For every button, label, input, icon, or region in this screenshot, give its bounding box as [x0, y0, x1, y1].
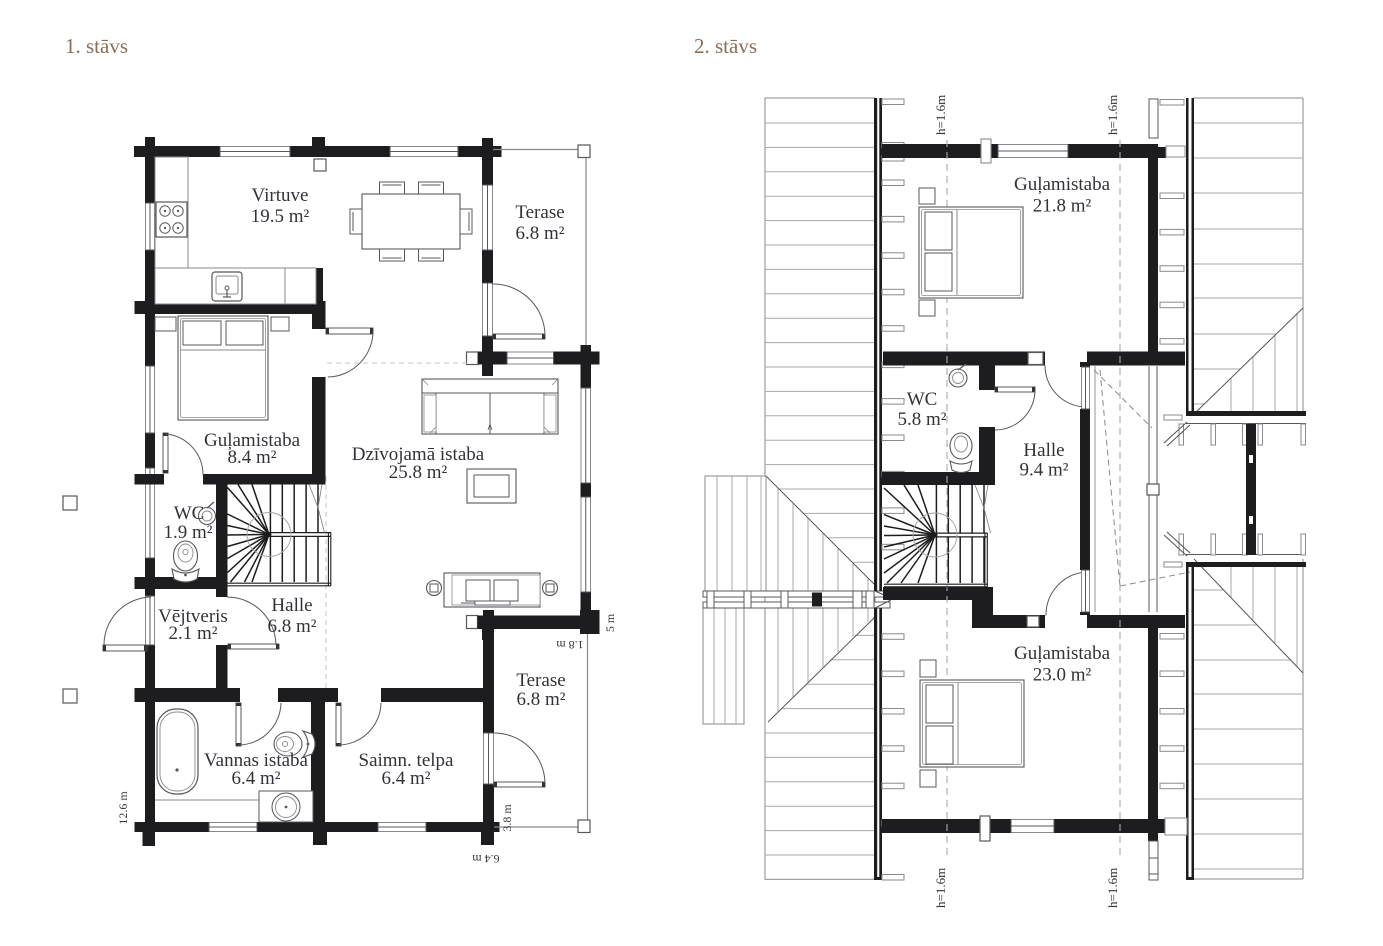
svg-text:h=1.6m: h=1.6m [933, 95, 948, 135]
svg-text:h=1.6m: h=1.6m [1105, 868, 1120, 908]
svg-text:6.4 m²: 6.4 m² [232, 768, 281, 789]
svg-text:12.6 m: 12.6 m [116, 791, 130, 825]
svg-text:h=1.6m: h=1.6m [933, 868, 948, 908]
svg-text:6.8 m²: 6.8 m² [516, 223, 565, 244]
svg-text:6.8 m²: 6.8 m² [517, 689, 566, 710]
svg-text:2. stāvs: 2. stāvs [694, 34, 757, 58]
svg-text:6.8 m²: 6.8 m² [268, 616, 317, 637]
svg-text:3.8 m: 3.8 m [500, 804, 514, 832]
svg-text:6.4 m: 6.4 m [472, 852, 500, 866]
svg-text:8.4 m²: 8.4 m² [228, 447, 277, 468]
svg-text:Virtuve: Virtuve [252, 185, 309, 206]
svg-text:1. stāvs: 1. stāvs [65, 34, 128, 58]
svg-text:23.0 m²: 23.0 m² [1033, 665, 1092, 686]
svg-text:5.8 m²: 5.8 m² [898, 409, 947, 430]
svg-text:Guļamistaba: Guļamistaba [1014, 174, 1111, 195]
svg-text:25.8 m²: 25.8 m² [389, 462, 448, 483]
svg-text:WC: WC [907, 389, 938, 410]
svg-text:Halle: Halle [1023, 440, 1064, 461]
svg-text:WC: WC [174, 503, 205, 524]
svg-text:21.8 m²: 21.8 m² [1033, 196, 1092, 217]
svg-text:Halle: Halle [271, 595, 312, 616]
svg-text:19.5 m²: 19.5 m² [251, 206, 310, 227]
svg-text:Guļamistaba: Guļamistaba [1014, 643, 1111, 664]
svg-text:2.1 m²: 2.1 m² [169, 623, 218, 644]
svg-text:Terase: Terase [516, 670, 565, 691]
svg-text:9.4 m²: 9.4 m² [1020, 460, 1069, 481]
svg-text:6.4 m²: 6.4 m² [382, 768, 431, 789]
svg-text:5 m: 5 m [603, 613, 617, 632]
svg-text:1.9 m²: 1.9 m² [164, 522, 213, 543]
svg-text:1.8 m: 1.8 m [556, 638, 584, 652]
svg-text:h=1.6m: h=1.6m [1105, 95, 1120, 135]
svg-text:Terase: Terase [515, 202, 564, 223]
